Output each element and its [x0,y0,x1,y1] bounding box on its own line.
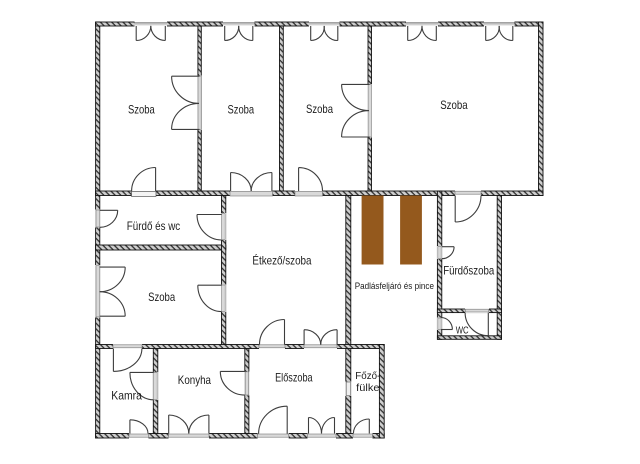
svg-text:Szoba: Szoba [228,103,255,117]
svg-text:Előszoba: Előszoba [275,371,313,385]
svg-text:Konyha: Konyha [178,373,211,387]
svg-text:WC: WC [456,326,469,337]
svg-text:Főző-: Főző- [355,370,380,382]
svg-text:Fürdőszoba: Fürdőszoba [443,264,494,278]
svg-text:Szoba: Szoba [306,102,333,116]
svg-text:Fürdő és wc: Fürdő és wc [127,219,180,233]
svg-text:fülke: fülke [356,382,379,394]
svg-text:Padlásfeljáró és pince: Padlásfeljáró és pince [355,281,434,291]
svg-text:Étkező/szoba: Étkező/szoba [252,253,311,268]
svg-text:Szoba: Szoba [440,98,468,112]
svg-text:Szoba: Szoba [148,290,175,304]
svg-text:Kamra: Kamra [111,389,142,403]
svg-text:Szoba: Szoba [128,102,155,116]
